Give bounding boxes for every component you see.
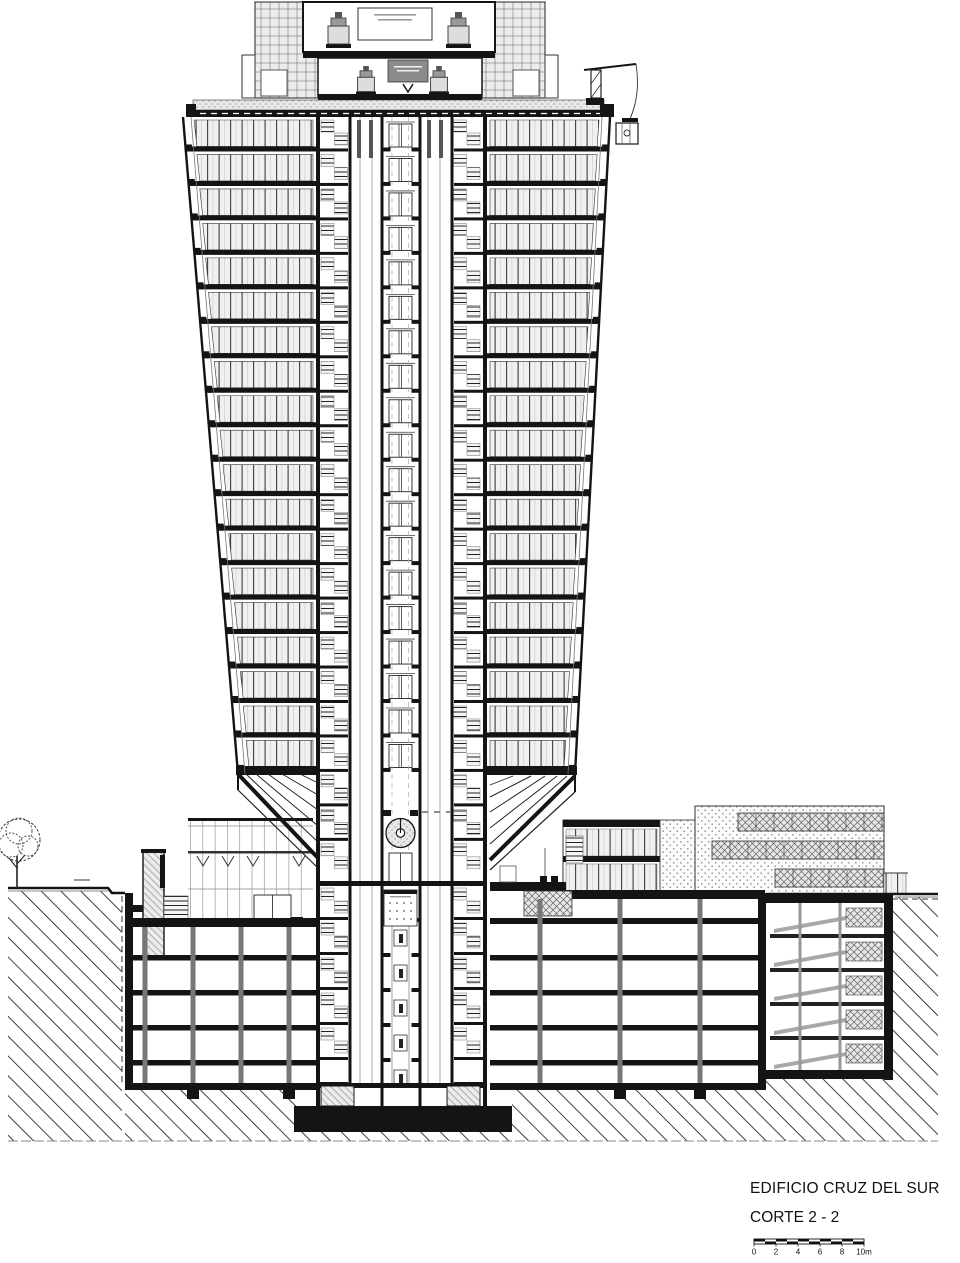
parking-ramp-structure <box>766 895 893 1080</box>
tower-east-wing <box>487 117 610 775</box>
title-block: EDIFICIO CRUZ DEL SUR CORTE 2 - 2 024681… <box>750 1180 960 1257</box>
scale-bar: 0246810m <box>750 1237 900 1257</box>
atrium-left <box>130 818 313 958</box>
foundation-mat <box>294 1086 512 1132</box>
tower-west-wing <box>183 117 318 775</box>
tree <box>0 818 40 888</box>
service-core <box>316 100 487 1108</box>
scale-tick-label: 2 <box>774 1248 779 1257</box>
scale-tick-label: 10m <box>856 1248 872 1257</box>
scale-tick-label: 0 <box>752 1248 757 1257</box>
scale-tick-label: 4 <box>796 1248 801 1257</box>
drawing-title: CORTE 2 - 2 <box>750 1209 960 1227</box>
sheet: EDIFICIO CRUZ DEL SUR CORTE 2 - 2 024681… <box>0 0 960 1263</box>
roof-penthouse <box>242 2 558 100</box>
transfer-diagonals-east <box>490 772 575 870</box>
podium-buildings-right <box>563 806 908 895</box>
section-drawing <box>0 0 960 1155</box>
roof-band <box>186 100 614 117</box>
basement-left <box>125 893 318 1099</box>
scale-tick-label: 6 <box>818 1248 823 1257</box>
scale-tick-label: 8 <box>840 1248 845 1257</box>
project-title: EDIFICIO CRUZ DEL SUR <box>750 1180 960 1198</box>
